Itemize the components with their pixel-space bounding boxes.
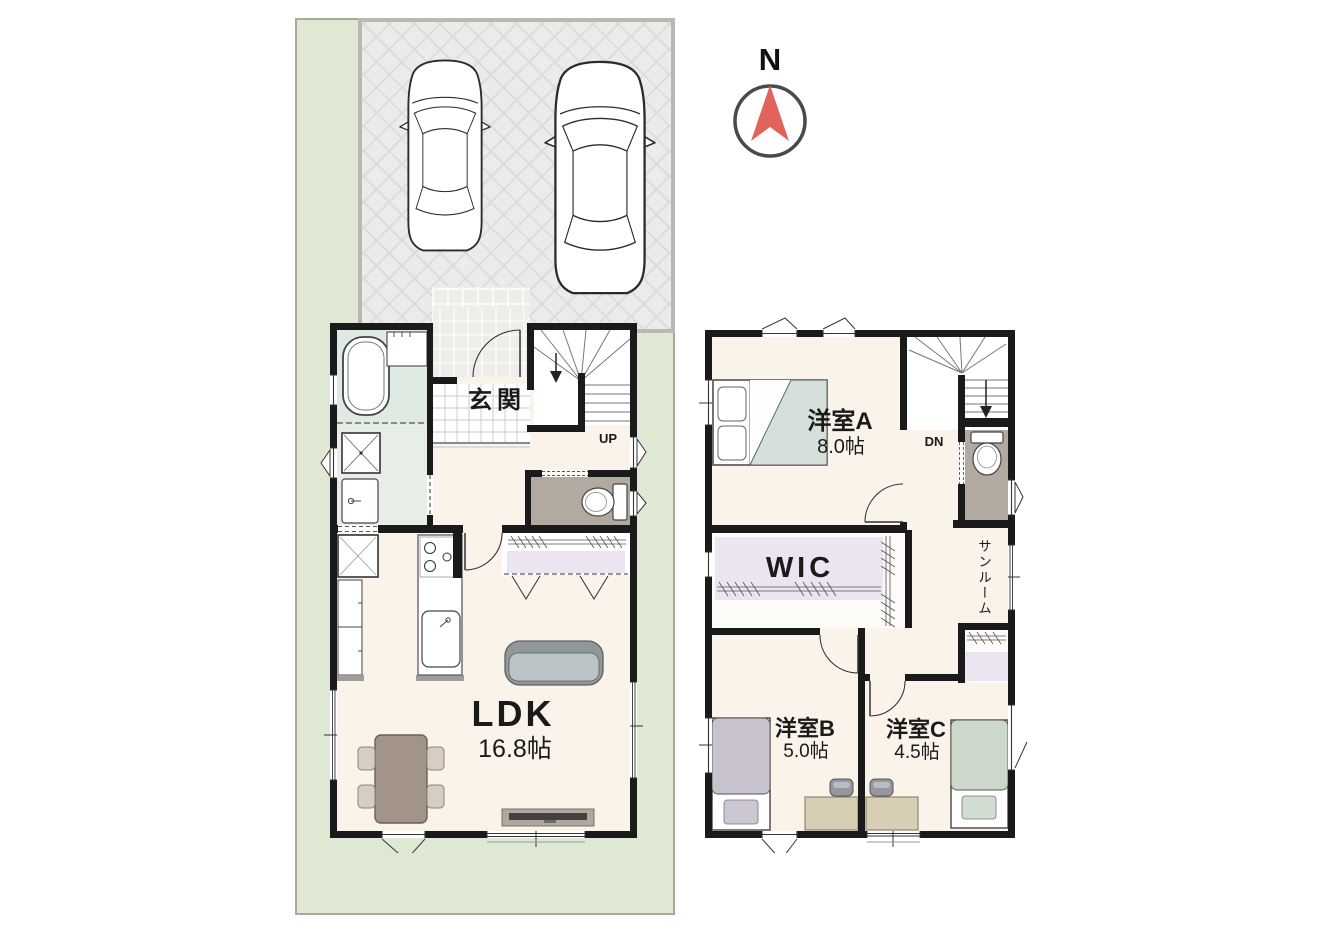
car-icon (399, 48, 491, 262)
entrance-label: 玄関 (449, 387, 545, 415)
washing-machine-icon (342, 433, 380, 473)
compass-north-arrow-icon (728, 75, 812, 165)
bath-counter (387, 332, 427, 366)
sunroom-label: サンルーム (969, 528, 991, 628)
car-icon (544, 52, 656, 302)
room-a-label: 洋室A (770, 408, 910, 436)
room-c-size-label: 4.5帖 (846, 742, 988, 764)
sofa-icon (505, 641, 603, 685)
kitchen-sink-icon (422, 611, 460, 667)
stairs-down-label: DN (912, 435, 956, 450)
ldk-size-label: 16.8帖 (433, 735, 597, 764)
porch-floor (433, 308, 527, 377)
sliding-doors (958, 442, 965, 484)
floor-2f-plan: 洋室A 8.0帖 DN WIC サンルーム 洋室B 5.0帖 洋室C 4.5帖 (705, 330, 1015, 838)
ldk-label: LDK (433, 693, 593, 734)
stairs-up-label: UP (586, 432, 630, 447)
dining-table-icon (375, 735, 427, 823)
toilet-icon (971, 432, 1003, 475)
room-c-label: 洋室C (846, 717, 986, 742)
counter-end (336, 675, 364, 681)
pantry-shelf-icon (338, 580, 362, 675)
compass-north-label: N (728, 44, 812, 75)
refrigerator-icon (338, 535, 378, 577)
bathtub-icon (343, 337, 389, 415)
room-a-size-label: 8.0帖 (770, 436, 912, 459)
vanity-sink-icon (342, 479, 378, 523)
floorplan-page: N (0, 0, 1337, 932)
tv-board-icon (502, 809, 594, 826)
stairs-floor (907, 337, 1008, 430)
counter-end (416, 675, 464, 681)
compass: N (728, 44, 812, 170)
wic-label: WIC (730, 552, 870, 585)
floor-1f-plan: 玄関 UP LDK 16.8帖 (330, 323, 637, 838)
